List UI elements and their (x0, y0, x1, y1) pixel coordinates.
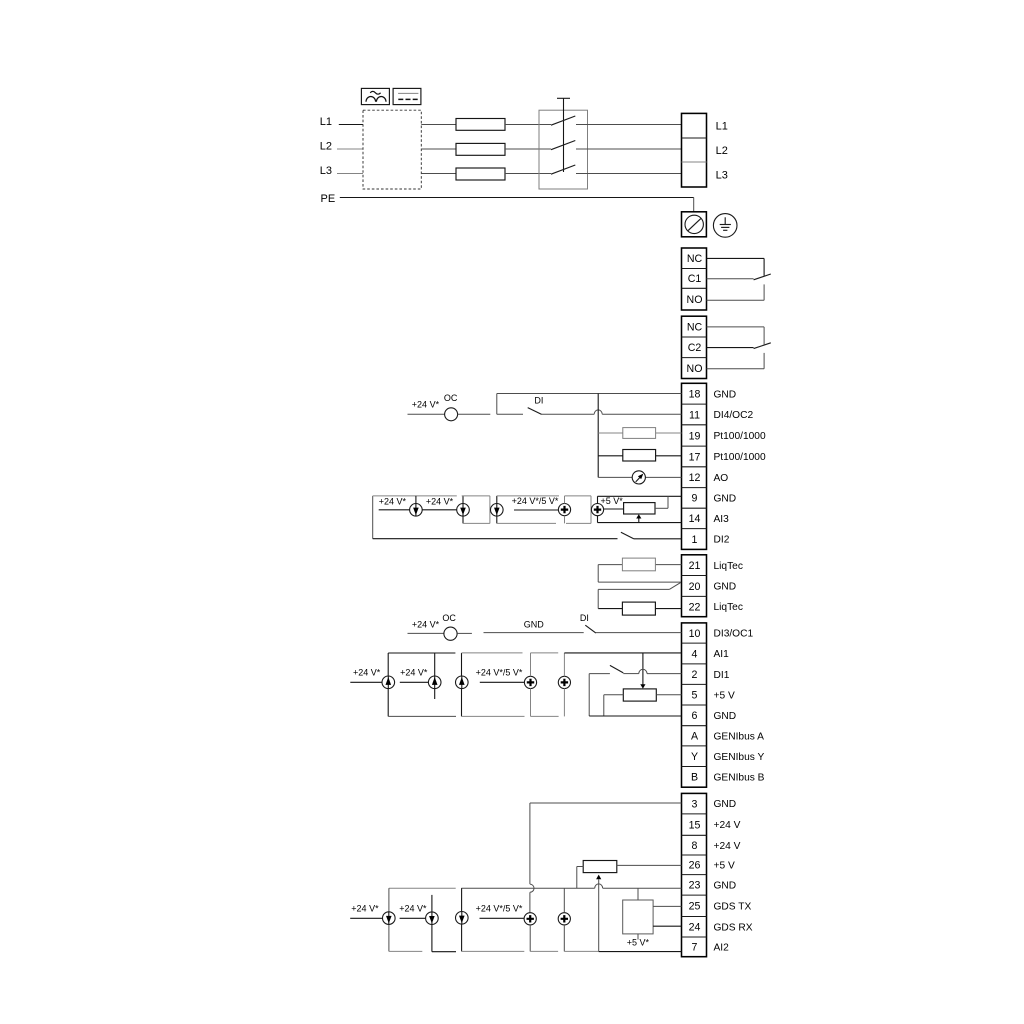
svg-text:L3: L3 (716, 169, 728, 181)
svg-text:+24 V*: +24 V* (412, 620, 440, 630)
svg-text:NO: NO (687, 294, 703, 306)
svg-text:24: 24 (689, 922, 701, 934)
svg-text:+5 V*: +5 V* (627, 938, 650, 948)
svg-text:5: 5 (692, 690, 698, 702)
svg-text:L2: L2 (716, 145, 728, 157)
svg-text:25: 25 (689, 901, 701, 913)
svg-text:9: 9 (692, 493, 698, 505)
svg-text:+24 V*/5 V*: +24 V*/5 V* (512, 496, 559, 506)
svg-text:GND: GND (714, 389, 737, 400)
svg-text:LiqTec: LiqTec (714, 561, 743, 572)
svg-text:B: B (691, 772, 698, 784)
svg-text:+24 V: +24 V (714, 841, 741, 852)
svg-text:GND: GND (714, 711, 737, 722)
svg-text:AI1: AI1 (714, 649, 730, 660)
svg-text:22: 22 (689, 601, 701, 613)
svg-text:L2: L2 (320, 141, 332, 153)
svg-text:GND: GND (524, 620, 545, 630)
svg-text:GDS TX: GDS TX (714, 901, 752, 912)
svg-text:NO: NO (687, 363, 703, 375)
svg-text:+24 V*: +24 V* (399, 904, 427, 914)
svg-text:+5 V: +5 V (714, 860, 735, 871)
svg-text:+5 V: +5 V (714, 690, 735, 701)
svg-text:NC: NC (687, 321, 703, 333)
svg-text:DI3/OC1: DI3/OC1 (714, 629, 754, 640)
svg-text:12: 12 (689, 472, 701, 484)
svg-text:+24 V*: +24 V* (351, 904, 379, 914)
svg-text:Y: Y (691, 751, 698, 763)
svg-text:DI2: DI2 (714, 535, 730, 546)
svg-text:AI2: AI2 (714, 943, 730, 954)
svg-text:C2: C2 (688, 342, 702, 354)
svg-text:OC: OC (444, 393, 458, 403)
svg-text:L3: L3 (320, 165, 332, 177)
svg-text:+24 V*: +24 V* (400, 667, 428, 677)
svg-text:GND: GND (714, 881, 737, 892)
svg-text:Pt100/1000: Pt100/1000 (714, 431, 766, 442)
svg-text:11: 11 (689, 409, 700, 421)
svg-text:8: 8 (692, 840, 698, 852)
svg-text:+24 V*/5 V*: +24 V*/5 V* (476, 904, 523, 914)
svg-text:NC: NC (687, 253, 703, 265)
svg-text:GENIbus Y: GENIbus Y (714, 752, 765, 763)
svg-text:+24 V*: +24 V* (412, 399, 440, 409)
svg-text:4: 4 (692, 648, 698, 660)
svg-text:+24 V: +24 V (714, 820, 741, 831)
svg-text:A: A (691, 731, 699, 743)
svg-text:PE: PE (321, 193, 336, 205)
svg-text:C1: C1 (688, 273, 702, 285)
svg-text:+24 V*: +24 V* (426, 497, 454, 507)
svg-text:L1: L1 (320, 116, 332, 128)
svg-text:L1: L1 (716, 120, 728, 132)
svg-text:+5 V*: +5 V* (601, 496, 624, 506)
svg-text:GENIbus B: GENIbus B (714, 773, 765, 784)
svg-text:DI4/OC2: DI4/OC2 (714, 410, 754, 421)
svg-text:DI1: DI1 (714, 670, 730, 681)
svg-text:OC: OC (442, 613, 456, 623)
svg-text:23: 23 (689, 880, 701, 892)
svg-text:+24 V*/5 V*: +24 V*/5 V* (476, 668, 523, 678)
svg-text:LiqTec: LiqTec (714, 602, 743, 613)
svg-text:DI: DI (534, 395, 543, 405)
svg-text:10: 10 (689, 628, 701, 640)
svg-text:1: 1 (692, 534, 698, 546)
svg-text:2: 2 (692, 669, 698, 681)
svg-text:18: 18 (689, 389, 701, 401)
svg-text:GND: GND (714, 494, 737, 505)
svg-text:19: 19 (689, 430, 701, 442)
svg-text:GENIbus A: GENIbus A (714, 731, 765, 742)
svg-text:7: 7 (692, 942, 698, 954)
svg-text:26: 26 (689, 860, 701, 872)
svg-text:AO: AO (714, 473, 729, 484)
svg-text:3: 3 (692, 798, 698, 810)
svg-text:6: 6 (692, 710, 698, 722)
svg-text:DI: DI (580, 613, 589, 623)
svg-text:20: 20 (689, 581, 701, 593)
svg-text:AI3: AI3 (714, 514, 730, 525)
svg-text:21: 21 (689, 560, 701, 572)
svg-text:Pt100/1000: Pt100/1000 (714, 452, 766, 463)
svg-text:14: 14 (689, 513, 701, 525)
svg-text:+24 V*: +24 V* (379, 497, 407, 507)
svg-text:+24 V*: +24 V* (353, 667, 381, 677)
svg-text:GND: GND (714, 799, 737, 810)
svg-text:GND: GND (714, 582, 737, 593)
svg-text:17: 17 (689, 451, 701, 463)
svg-text:GDS RX: GDS RX (714, 922, 753, 933)
svg-text:15: 15 (689, 819, 701, 831)
